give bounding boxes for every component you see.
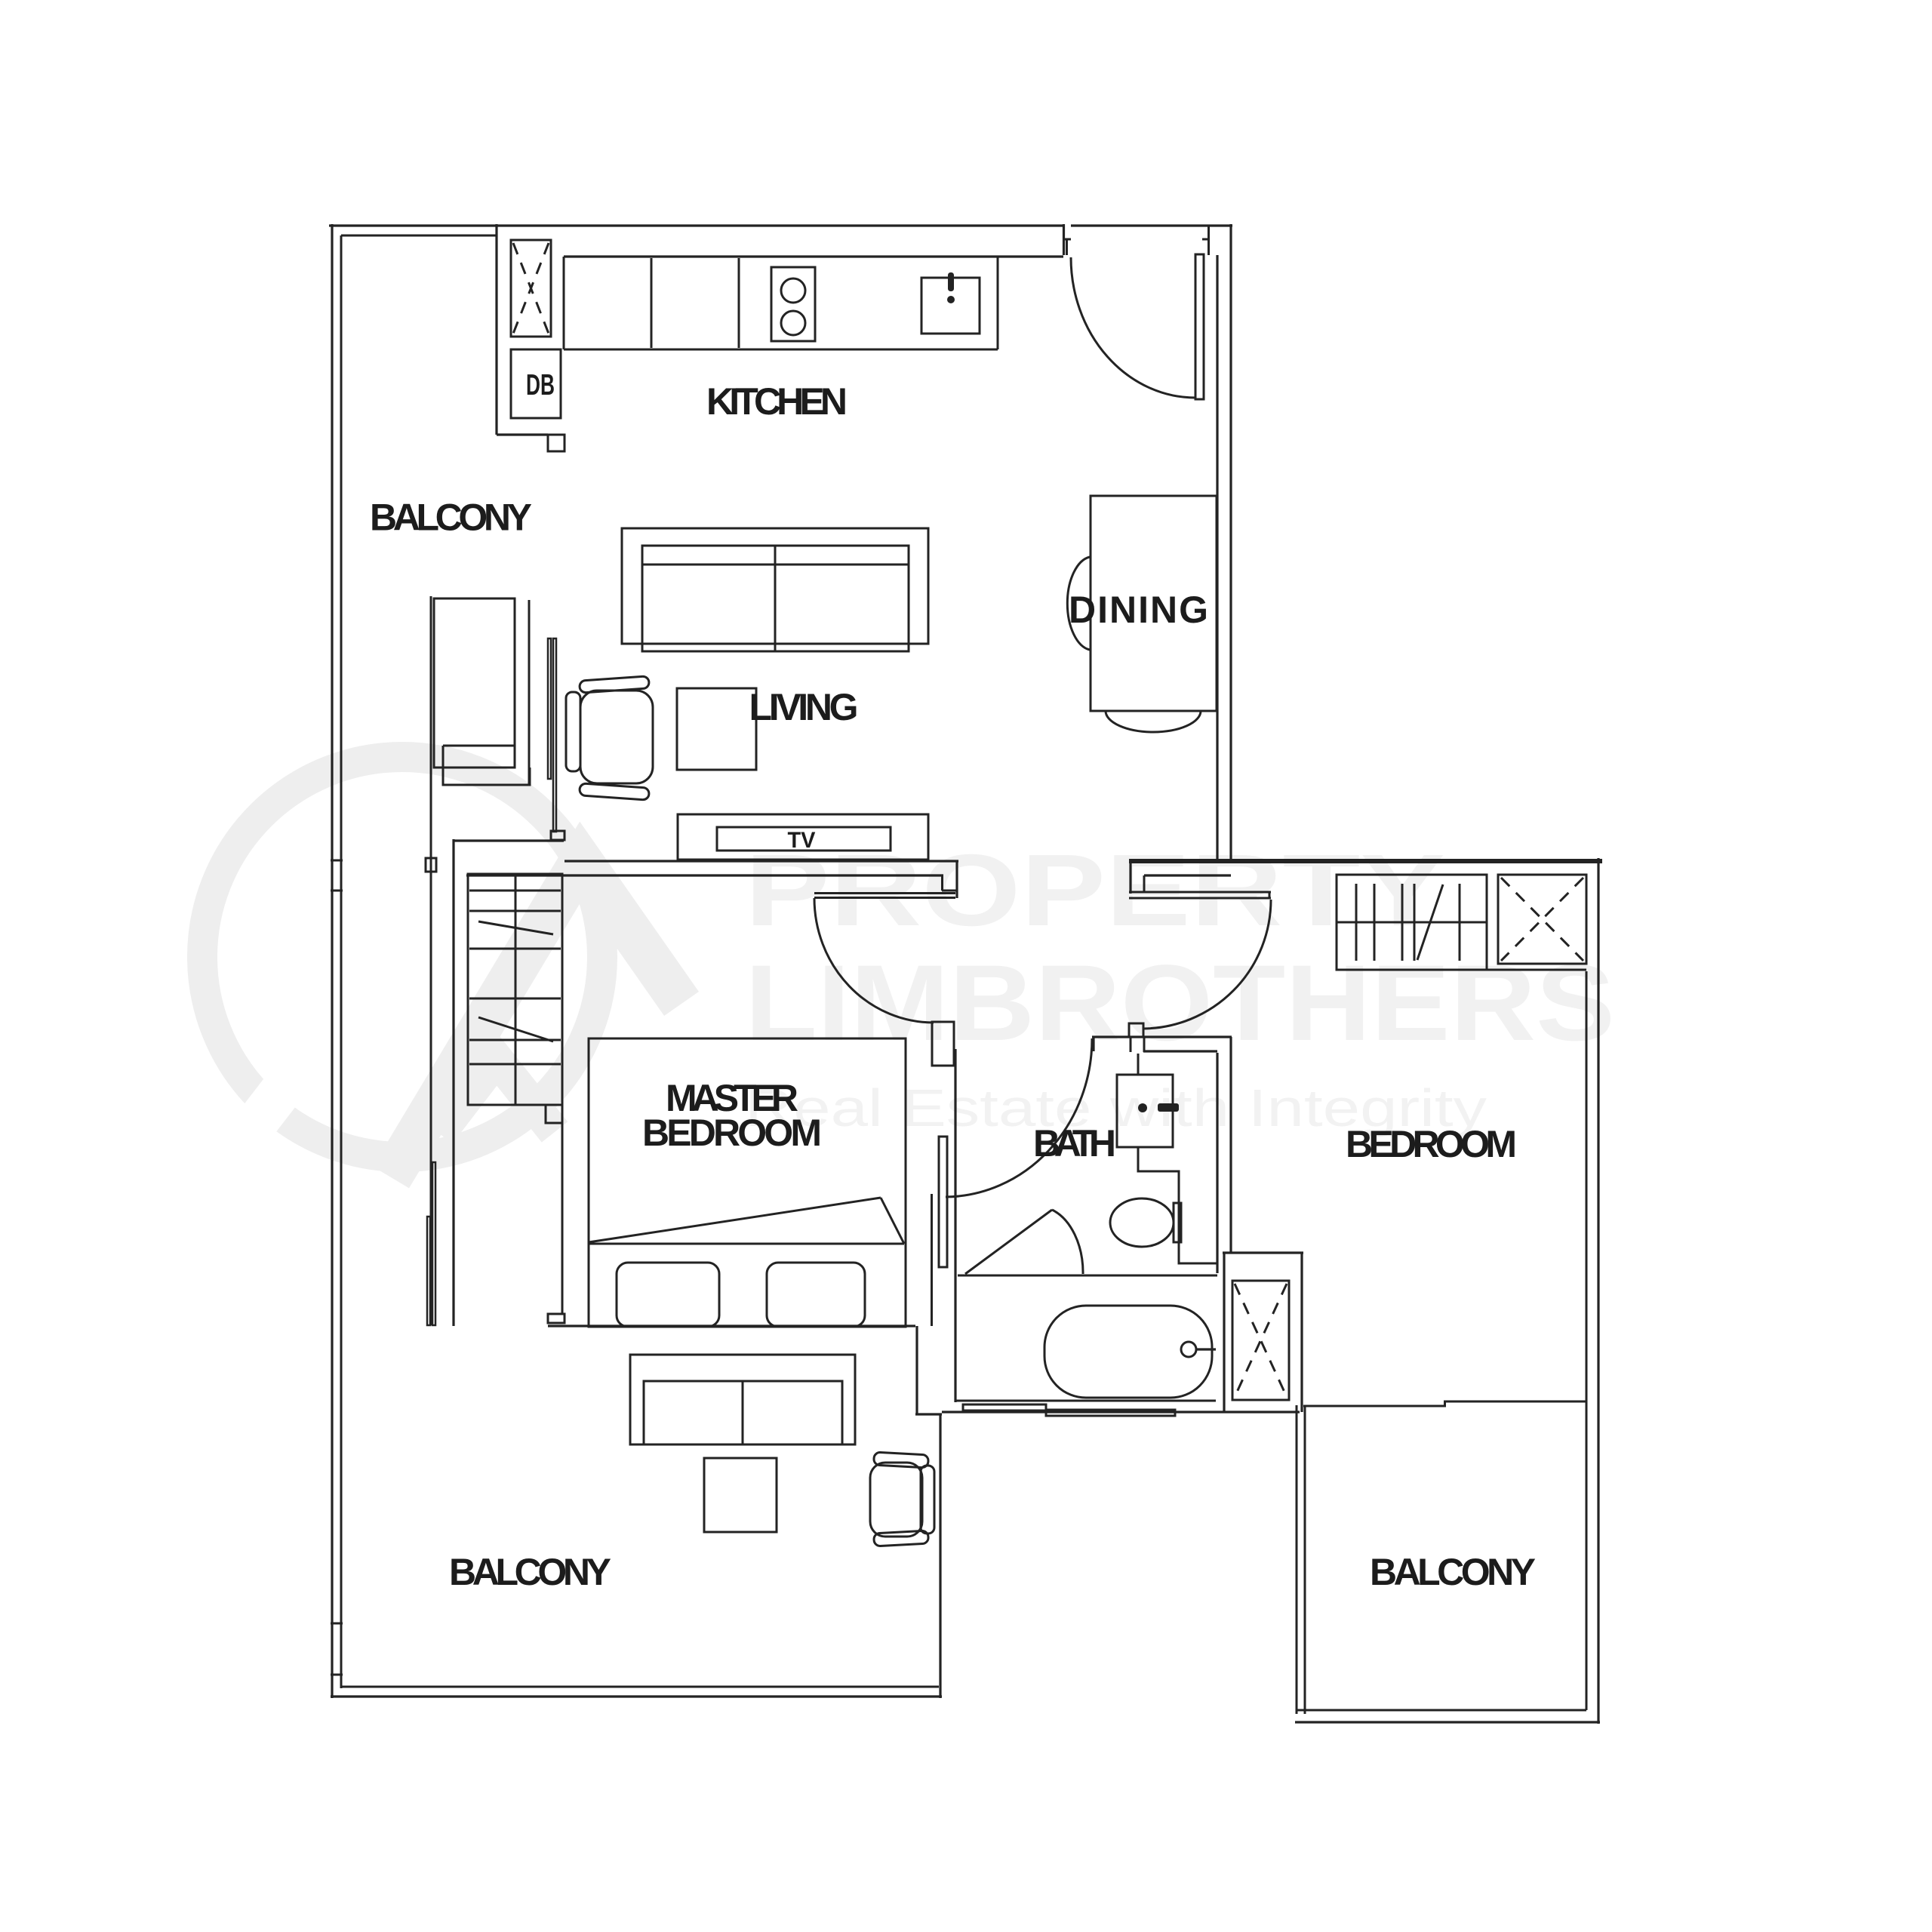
- svg-text:TV: TV: [788, 828, 816, 853]
- svg-text:DB: DB: [526, 369, 555, 401]
- svg-text:BEDROOM: BEDROOM: [642, 1112, 822, 1154]
- svg-text:BALCONY: BALCONY: [449, 1551, 611, 1593]
- svg-text:BALCONY: BALCONY: [1370, 1551, 1536, 1593]
- svg-text:LIVING: LIVING: [749, 686, 859, 728]
- svg-text:BALCONY: BALCONY: [370, 497, 532, 539]
- svg-text:BEDROOM: BEDROOM: [1346, 1123, 1517, 1165]
- svg-text:DINING: DINING: [1069, 589, 1208, 631]
- svg-text:KITCHEN: KITCHEN: [706, 380, 848, 423]
- svg-text:LIMBROTHERS: LIMBROTHERS: [745, 943, 1615, 1063]
- svg-text:BATH: BATH: [1033, 1122, 1116, 1164]
